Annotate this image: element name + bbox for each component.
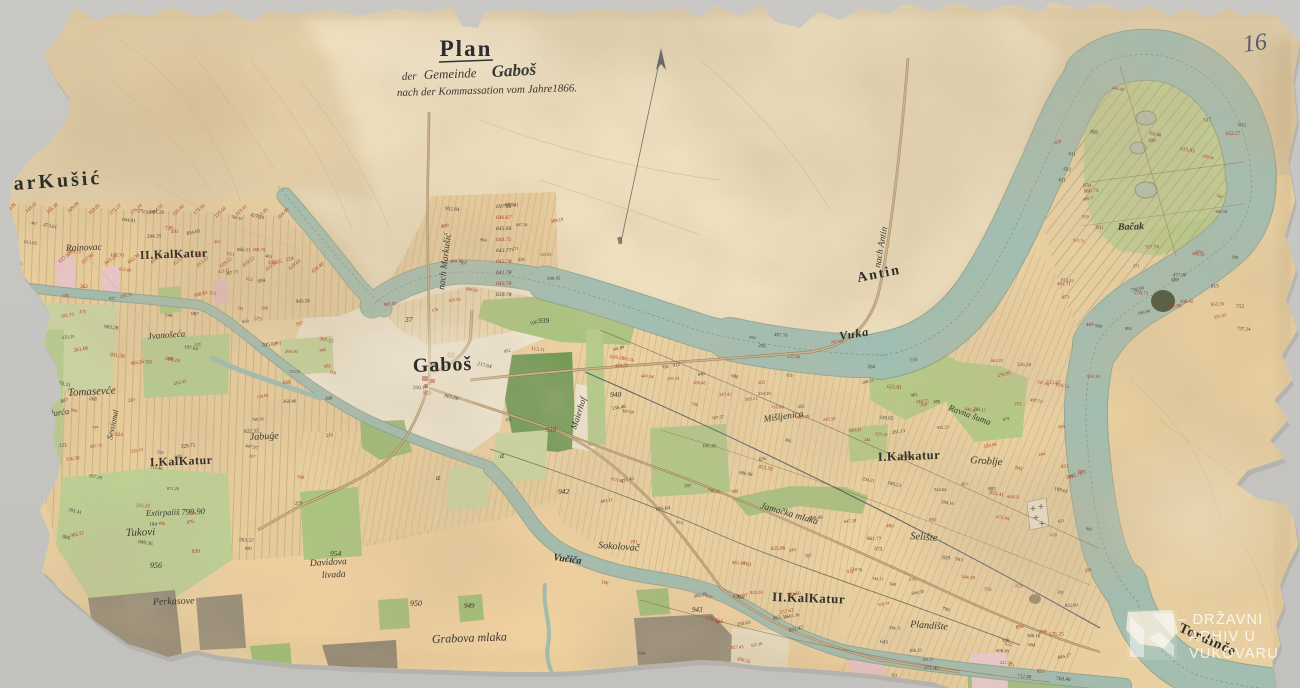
svg-text:115.82: 115.82: [540, 251, 552, 257]
svg-text:822.32: 822.32: [244, 428, 259, 435]
svg-text:925.98: 925.98: [1168, 304, 1182, 309]
svg-text:952.84: 952.84: [445, 206, 460, 213]
svg-text:389.71: 389.71: [67, 249, 82, 256]
svg-text:Plan: Plan: [440, 36, 493, 61]
svg-text:II.KalKatur: II.KalKatur: [772, 589, 846, 607]
svg-text:287: 287: [128, 399, 136, 404]
svg-text:373: 373: [1014, 402, 1022, 408]
svg-text:152.88: 152.88: [771, 404, 785, 409]
svg-text:425.86: 425.86: [771, 545, 786, 552]
svg-text:621.81: 621.81: [887, 384, 903, 391]
svg-text:938: 938: [545, 425, 557, 434]
svg-text:Selište: Selište: [910, 531, 938, 544]
svg-text:594.71: 594.71: [889, 625, 901, 631]
svg-text:898.38: 898.38: [996, 648, 1010, 653]
svg-text:927.43: 927.43: [731, 644, 745, 650]
svg-text:794: 794: [638, 652, 646, 657]
svg-text:477.96: 477.96: [1173, 273, 1187, 278]
svg-text:645.66: 645.66: [496, 226, 512, 232]
svg-text:950: 950: [410, 599, 422, 608]
svg-text:790: 790: [297, 476, 305, 481]
svg-text:931: 931: [1096, 225, 1104, 231]
svg-text:644.72: 644.72: [496, 237, 512, 243]
svg-text:411: 411: [1058, 177, 1067, 184]
svg-text:652.27: 652.27: [1226, 130, 1241, 137]
svg-text:882: 882: [1125, 326, 1133, 331]
svg-text:Davidova: Davidova: [309, 557, 348, 569]
svg-text:469: 469: [1086, 322, 1094, 328]
svg-text:362: 362: [80, 284, 88, 290]
svg-text:– DRŽAVNI: – DRŽAVNI: [1178, 611, 1263, 628]
svg-text:429.70: 429.70: [615, 363, 629, 368]
svg-text:491: 491: [171, 230, 179, 235]
svg-text:642.78: 642.78: [496, 259, 512, 265]
svg-text:639.78: 639.78: [496, 292, 512, 298]
svg-text:122: 122: [167, 356, 174, 361]
svg-text:360.54: 360.54: [1215, 209, 1228, 214]
svg-text:568.16: 568.16: [1027, 634, 1041, 639]
svg-text:389: 389: [933, 400, 941, 405]
svg-text:994: 994: [1095, 324, 1103, 330]
svg-text:833: 833: [1238, 122, 1247, 129]
svg-text:Bačak: Bačak: [1117, 221, 1144, 233]
svg-text:206: 206: [758, 343, 767, 350]
svg-text:260.40: 260.40: [283, 400, 297, 405]
svg-text:Gaboš: Gaboš: [491, 60, 538, 81]
svg-text:684: 684: [1028, 643, 1036, 649]
svg-text:839: 839: [192, 548, 201, 555]
svg-text:16: 16: [1241, 29, 1268, 58]
svg-text:707.74: 707.74: [1145, 244, 1160, 251]
svg-text:328.65: 328.65: [879, 415, 894, 422]
svg-text:365.56: 365.56: [1192, 251, 1206, 257]
svg-text:573: 573: [874, 546, 883, 553]
svg-text:829: 829: [942, 555, 951, 562]
svg-text:599.45: 599.45: [547, 277, 561, 282]
svg-text:VUKOVARU: VUKOVARU: [1189, 646, 1279, 662]
svg-text:368.46: 368.46: [693, 380, 707, 385]
svg-text:271.42: 271.42: [924, 665, 939, 672]
svg-text:945.58: 945.58: [296, 298, 311, 305]
svg-text:481.71: 481.71: [1057, 282, 1071, 287]
svg-text:326.58: 326.58: [1017, 362, 1032, 368]
svg-text:371: 371: [1133, 263, 1139, 268]
svg-text:106.38: 106.38: [702, 444, 716, 449]
svg-text:191: 191: [505, 417, 513, 422]
svg-text:769.39: 769.39: [252, 416, 264, 422]
svg-text:640.78: 640.78: [496, 281, 512, 287]
svg-text:119.34: 119.34: [667, 376, 680, 381]
svg-text:847.28: 847.28: [516, 222, 528, 227]
svg-text:661.29: 661.29: [991, 358, 1003, 363]
svg-text:987: 987: [191, 312, 199, 318]
svg-text:302: 302: [214, 239, 221, 244]
svg-text:394: 394: [867, 364, 876, 371]
svg-text:524.62: 524.62: [934, 487, 946, 492]
svg-text:582: 582: [324, 364, 332, 370]
svg-text:Perkasove: Perkasove: [152, 596, 196, 609]
svg-text:973: 973: [1062, 295, 1070, 301]
svg-text:248.75: 248.75: [916, 398, 930, 404]
svg-text:a: a: [500, 451, 504, 460]
svg-text:288: 288: [325, 396, 333, 402]
svg-text:123: 123: [59, 443, 67, 449]
svg-text:576.25: 576.25: [1049, 631, 1064, 638]
svg-text:861.77: 861.77: [867, 536, 882, 542]
svg-text:202: 202: [758, 380, 766, 386]
svg-text:Tukovi: Tukovi: [126, 526, 156, 539]
svg-text:528: 528: [1050, 532, 1058, 538]
svg-text:922: 922: [109, 295, 116, 301]
svg-text:297: 297: [684, 484, 692, 490]
svg-text:920.20: 920.20: [750, 590, 763, 595]
svg-text:der: der: [402, 70, 418, 83]
svg-text:993.20: 993.20: [1087, 375, 1101, 380]
svg-text:659: 659: [242, 319, 250, 324]
svg-text:244: 244: [864, 437, 871, 442]
svg-text:768.40: 768.40: [1056, 676, 1071, 683]
svg-text:480: 480: [886, 524, 894, 530]
svg-text:737.24: 737.24: [1237, 327, 1251, 333]
svg-text:361: 361: [1065, 474, 1074, 481]
svg-text:932.23: 932.23: [937, 424, 949, 430]
svg-text:396: 396: [261, 305, 269, 311]
svg-text:316: 316: [984, 587, 992, 593]
svg-text:966.11: 966.11: [237, 248, 251, 253]
svg-text:643: 643: [880, 639, 889, 646]
svg-text:Gemeinde: Gemeinde: [424, 65, 477, 82]
svg-text:922.89: 922.89: [1065, 603, 1079, 609]
svg-text:830.97: 830.97: [733, 593, 749, 600]
svg-text:949: 949: [464, 602, 475, 610]
svg-text:940: 940: [610, 390, 622, 399]
svg-text:938: 938: [662, 364, 670, 369]
svg-text:664.51: 664.51: [1007, 494, 1021, 500]
svg-text:824: 824: [115, 432, 123, 438]
svg-text:411: 411: [1068, 151, 1077, 158]
svg-text:892: 892: [929, 518, 937, 523]
svg-text:livada: livada: [322, 570, 346, 581]
svg-text:300: 300: [1148, 138, 1156, 144]
svg-text:473: 473: [1008, 662, 1015, 668]
svg-text:575: 575: [254, 316, 263, 323]
svg-text:943: 943: [692, 606, 703, 614]
svg-text:429: 429: [518, 257, 526, 262]
svg-text:188.23: 188.23: [909, 649, 923, 654]
svg-text:871.26: 871.26: [167, 486, 180, 491]
svg-text:744.11: 744.11: [872, 576, 883, 581]
svg-text:643.77: 643.77: [496, 248, 512, 254]
svg-text:915: 915: [1211, 283, 1220, 290]
svg-text:37: 37: [404, 315, 413, 324]
svg-text:853.26: 853.26: [1211, 302, 1225, 308]
svg-text:721.25: 721.25: [289, 369, 301, 374]
svg-text:306.42: 306.42: [1180, 300, 1194, 305]
svg-text:961.26: 961.26: [150, 209, 165, 216]
svg-text:785: 785: [145, 360, 153, 366]
svg-text:990: 990: [245, 545, 253, 551]
svg-text:559: 559: [1082, 214, 1090, 219]
svg-text:221.66: 221.66: [787, 355, 801, 360]
svg-text:347.42: 347.42: [719, 392, 733, 397]
svg-text:421: 421: [1061, 463, 1069, 470]
svg-text:262: 262: [798, 403, 805, 409]
svg-text:490.36: 490.36: [285, 349, 298, 354]
svg-text:956: 956: [150, 561, 162, 570]
svg-text:184: 184: [149, 522, 158, 528]
svg-text:163.57: 163.57: [922, 657, 934, 662]
svg-text:813: 813: [423, 390, 432, 397]
svg-text:Extirpališ 799.90: Extirpališ 799.90: [145, 506, 206, 518]
svg-text:290: 290: [1058, 424, 1066, 429]
svg-text:118.70: 118.70: [110, 252, 125, 259]
svg-text:134.10: 134.10: [758, 391, 771, 396]
svg-text:a: a: [436, 473, 440, 482]
svg-text:ARHIV U: ARHIV U: [1189, 629, 1256, 645]
svg-text:Grabova mlaka: Grabova mlaka: [432, 629, 507, 646]
svg-text:487.61: 487.61: [505, 203, 519, 208]
svg-text:954: 954: [330, 549, 342, 558]
svg-text:840: 840: [698, 372, 706, 378]
svg-text:375: 375: [79, 310, 87, 315]
svg-text:641.78: 641.78: [496, 270, 512, 276]
svg-text:939: 939: [538, 316, 550, 325]
svg-text:Groblje: Groblje: [970, 455, 1003, 468]
svg-text:369.78: 369.78: [252, 248, 266, 253]
svg-text:579: 579: [909, 577, 917, 582]
svg-text:409: 409: [440, 223, 449, 230]
svg-text:885: 885: [1078, 469, 1087, 476]
svg-text:Gaboš: Gaboš: [412, 353, 472, 377]
svg-text:294.35: 294.35: [147, 233, 162, 240]
svg-text:245.59: 245.59: [823, 416, 837, 422]
svg-text:487.76: 487.76: [774, 333, 788, 339]
svg-text:213: 213: [1015, 584, 1023, 590]
svg-text:942: 942: [558, 487, 570, 496]
svg-text:885: 885: [988, 486, 996, 493]
svg-text:259: 259: [295, 501, 303, 507]
svg-text:669: 669: [283, 381, 291, 386]
svg-text:268: 268: [89, 396, 98, 403]
svg-text:515.32: 515.32: [136, 503, 151, 509]
svg-text:983: 983: [1086, 526, 1093, 532]
svg-text:646.67: 646.67: [496, 215, 512, 221]
svg-text:291: 291: [630, 540, 638, 546]
svg-text:853: 853: [1037, 668, 1046, 675]
svg-text:746: 746: [429, 363, 437, 368]
svg-text:712: 712: [1236, 304, 1245, 310]
